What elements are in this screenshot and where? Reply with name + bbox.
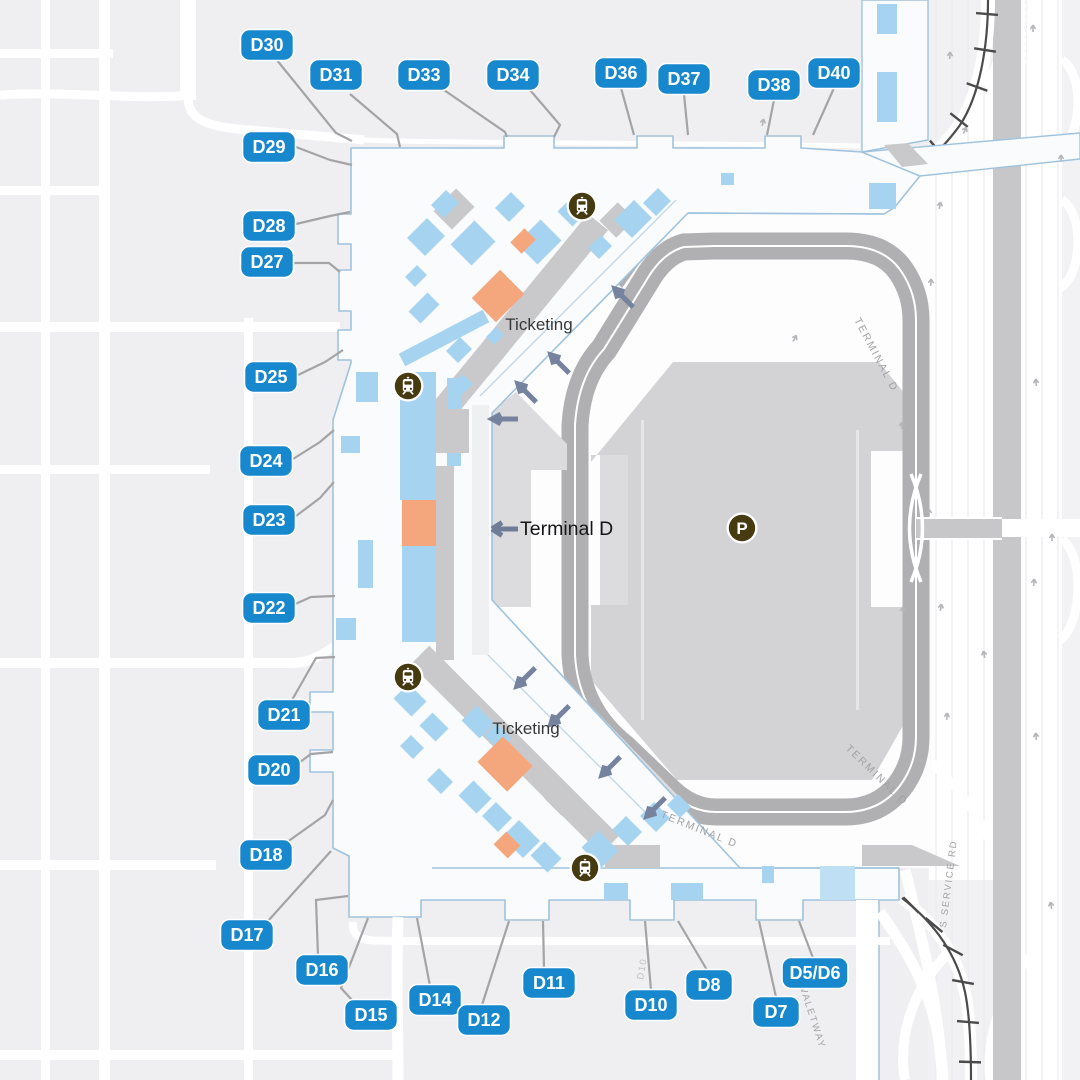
svg-text:D21: D21 (267, 705, 300, 725)
svg-text:D27: D27 (250, 252, 283, 272)
svg-text:D22: D22 (252, 598, 285, 618)
svg-text:D15: D15 (354, 1005, 387, 1025)
svg-text:D33: D33 (407, 65, 440, 85)
svg-text:D11: D11 (533, 973, 565, 993)
svg-text:D31: D31 (319, 65, 352, 85)
svg-text:Ticketing: Ticketing (505, 315, 572, 334)
svg-text:D8: D8 (697, 975, 720, 995)
svg-text:P: P (736, 519, 747, 538)
svg-text:D34: D34 (496, 65, 529, 85)
svg-text:D5/D6: D5/D6 (789, 963, 840, 983)
svg-text:D7: D7 (764, 1002, 787, 1022)
svg-text:D18: D18 (249, 845, 282, 865)
svg-text:D38: D38 (757, 75, 790, 95)
svg-text:D20: D20 (257, 760, 290, 780)
svg-text:D37: D37 (667, 69, 700, 89)
svg-text:D17: D17 (230, 925, 263, 945)
svg-text:D10: D10 (634, 995, 667, 1015)
svg-text:Terminal D: Terminal D (520, 518, 613, 540)
svg-text:D24: D24 (249, 451, 282, 471)
svg-text:D30: D30 (250, 35, 283, 55)
svg-text:D40: D40 (817, 63, 850, 83)
svg-text:D36: D36 (604, 63, 637, 83)
svg-text:D25: D25 (254, 367, 287, 387)
svg-text:Ticketing: Ticketing (492, 719, 559, 738)
svg-text:D29: D29 (252, 137, 285, 157)
svg-text:D14: D14 (418, 990, 451, 1010)
svg-text:D12: D12 (467, 1010, 500, 1030)
svg-text:D28: D28 (252, 216, 285, 236)
svg-text:D16: D16 (305, 960, 338, 980)
svg-text:D23: D23 (252, 510, 285, 530)
